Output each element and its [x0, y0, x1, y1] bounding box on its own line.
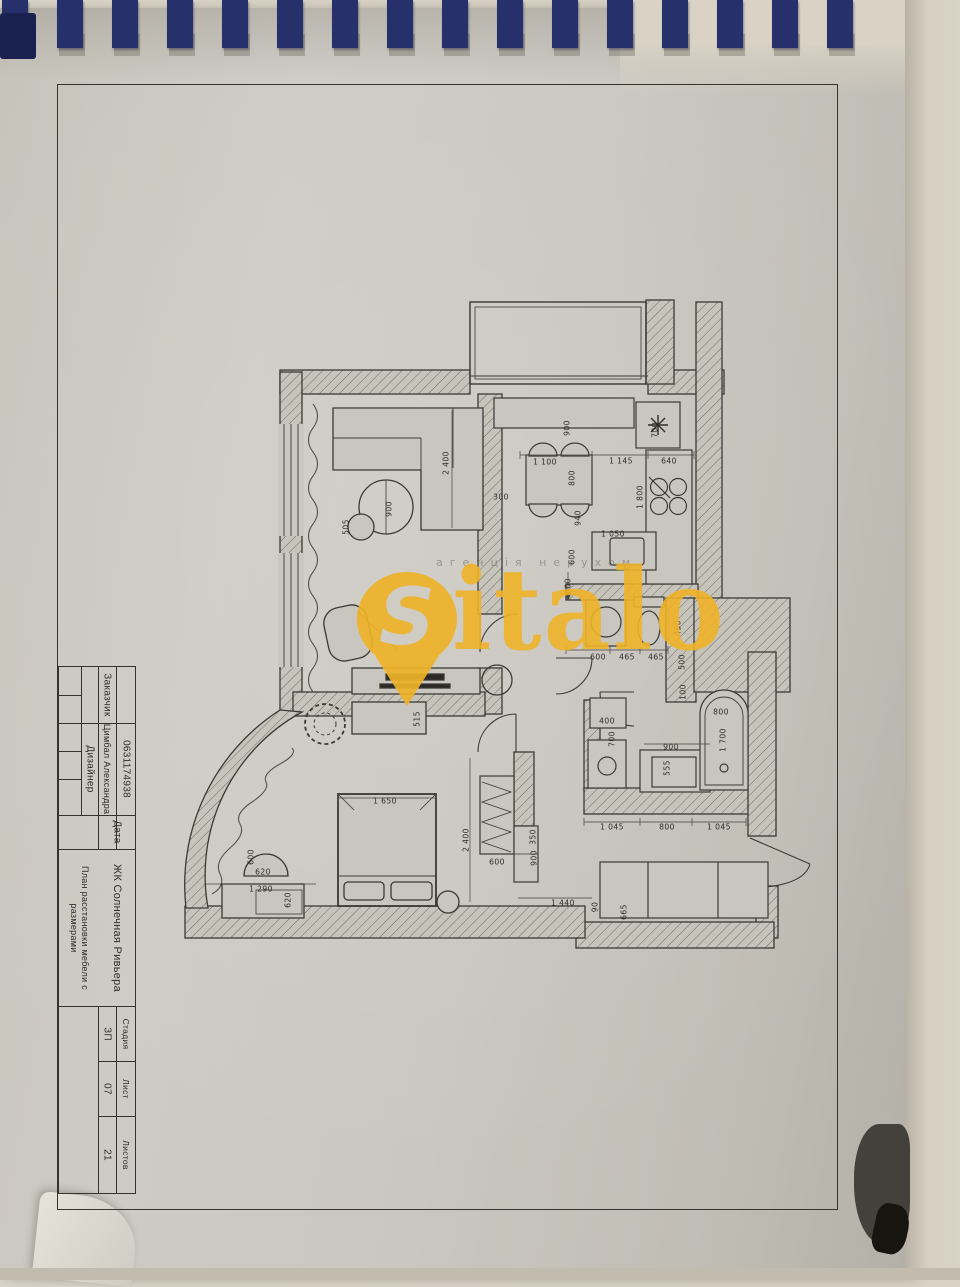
stage-value: ЗП [102, 1027, 113, 1041]
dimension-label: 300 [493, 493, 509, 502]
dimension-label: 800 [659, 823, 675, 832]
dimension-label: 800 [568, 470, 577, 486]
watermark-brand-text: italo [452, 554, 726, 666]
dimension-label: 515 [413, 711, 422, 727]
dimension-label: 1 800 [636, 485, 645, 509]
dimension-label: 900 [563, 420, 572, 436]
dimension-label: 400 [599, 717, 615, 726]
title-block: Заказчик Дизайнер Цимбал Александра 0631… [58, 666, 136, 1194]
sheet-title: План расстановки мебели с размерами [68, 853, 90, 1003]
sheet-label: Лист [121, 1079, 131, 1099]
dimension-label: 350 [529, 829, 538, 845]
dimension-label: 100 [679, 684, 688, 700]
dimension-label: 900 [530, 850, 539, 866]
dimension-label: 620 [284, 892, 293, 908]
date-label: Дата [111, 820, 122, 843]
sheet-value: 07 [102, 1083, 113, 1095]
dimension-label: 90 [591, 902, 600, 912]
dimension-label: 600 [247, 849, 256, 865]
dimension-label: 1 145 [609, 457, 633, 466]
sheets-value: 21 [102, 1149, 113, 1161]
dimension-label: 900 [663, 743, 679, 752]
stage-label: Стадия [121, 1018, 131, 1049]
dimension-label: 1 050 [601, 530, 625, 539]
dimension-label: 665 [620, 904, 629, 920]
designer-name: Цимбал Александра [102, 724, 112, 815]
dimension-label: 1 650 [373, 797, 397, 806]
dimension-label: 1 700 [719, 728, 728, 752]
watermark: S italo [352, 570, 652, 710]
dimension-label: 600 [489, 858, 505, 867]
dimension-label: 640 [661, 457, 677, 466]
dimension-label: 1 045 [707, 823, 731, 832]
dimension-label: 505 [342, 519, 351, 535]
designer-label: Дизайнер [84, 745, 95, 792]
dimension-label: 2 400 [442, 451, 451, 475]
dimension-label: 620 [255, 868, 271, 877]
sheets-label: Листов [121, 1140, 131, 1169]
dimension-label: 700 [651, 422, 660, 438]
dimension-label: 900 [385, 501, 394, 517]
dimension-label: 800 [713, 708, 729, 717]
dimension-label: 1 045 [600, 823, 624, 832]
dimension-label: 555 [663, 760, 672, 776]
dimension-label: 1 440 [551, 899, 575, 908]
watermark-pin-icon: S [352, 570, 462, 710]
dimension-label: 1 290 [249, 885, 273, 894]
dimension-label: 1 100 [533, 458, 557, 467]
project-name: ЖК Солнечная Ривьера [111, 863, 123, 991]
dimension-label: 700 [608, 731, 617, 747]
customer-label: Заказчик [102, 673, 113, 716]
designer-phone: 0631174938 [120, 740, 131, 798]
dimension-label: 940 [574, 510, 583, 526]
svg-text:S: S [379, 573, 435, 663]
dimension-label: 2 400 [462, 828, 471, 852]
